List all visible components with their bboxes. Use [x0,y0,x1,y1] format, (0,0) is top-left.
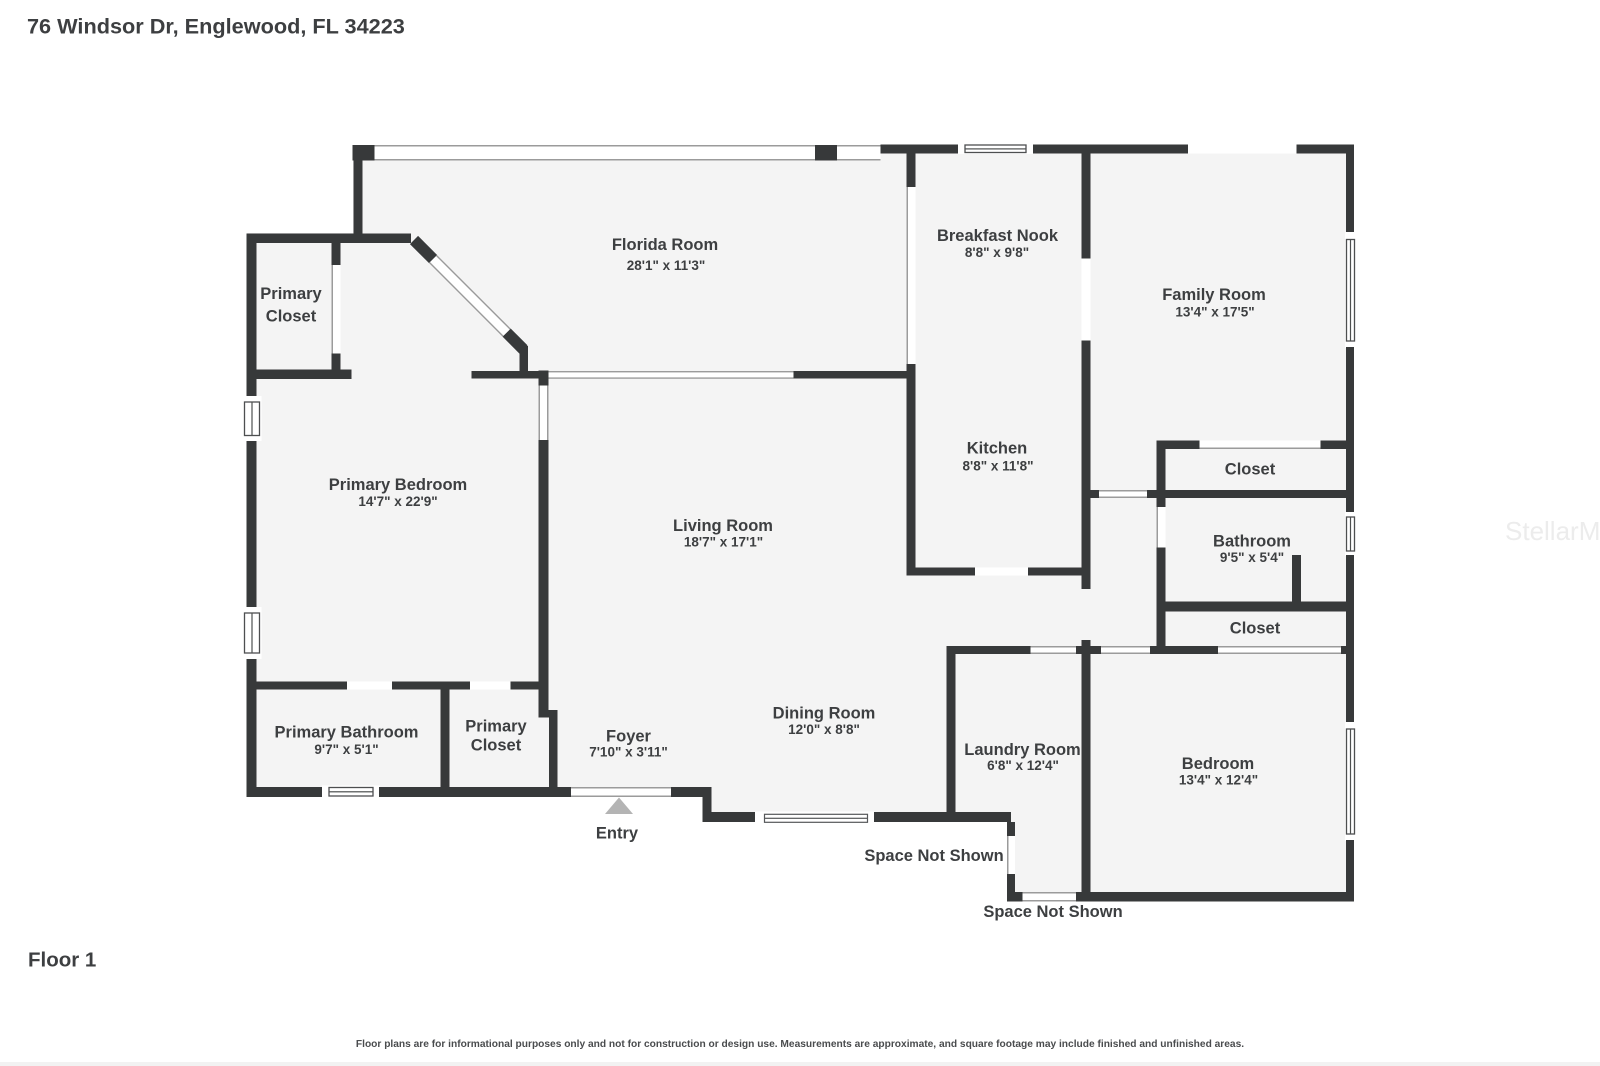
svg-text:8'8" x 11'8": 8'8" x 11'8" [962,459,1033,474]
svg-text:Foyer: Foyer [606,728,652,746]
svg-text:Laundry Room: Laundry Room [964,741,1080,759]
svg-text:StellarMLS: StellarMLS [1505,516,1600,546]
svg-text:Living Room: Living Room [673,517,773,535]
svg-text:13'4" x 12'4": 13'4" x 12'4" [1179,773,1258,788]
svg-text:Closet: Closet [1225,461,1276,479]
svg-text:8'8" x 9'8": 8'8" x 9'8" [965,245,1029,260]
svg-text:6'8" x 12'4": 6'8" x 12'4" [987,758,1059,773]
svg-text:Kitchen: Kitchen [967,440,1028,458]
svg-text:Breakfast Nook: Breakfast Nook [937,227,1059,245]
svg-text:Primary Bedroom: Primary Bedroom [329,476,467,494]
svg-text:Florida Room: Florida Room [612,236,718,254]
svg-text:28'1" x 11'3": 28'1" x 11'3" [627,258,706,273]
svg-text:76 Windsor Dr, Englewood, FL 3: 76 Windsor Dr, Englewood, FL 34223 [27,14,405,39]
svg-text:12'0" x 8'8": 12'0" x 8'8" [788,722,860,737]
svg-text:Primary Bathroom: Primary Bathroom [275,724,419,742]
svg-text:Floor plans are for informatio: Floor plans are for informational purpos… [356,1039,1244,1050]
svg-text:Closet: Closet [266,308,317,326]
svg-text:18'7" x 17'1": 18'7" x 17'1" [684,535,763,550]
svg-text:Dining Room: Dining Room [773,705,876,723]
svg-text:Family Room: Family Room [1162,286,1266,304]
svg-text:Floor 1: Floor 1 [28,949,96,972]
svg-text:9'7" x 5'1": 9'7" x 5'1" [314,742,378,757]
svg-text:7'10" x 3'11": 7'10" x 3'11" [589,745,668,760]
svg-text:Space Not Shown: Space Not Shown [983,903,1122,921]
svg-text:Closet: Closet [1230,620,1281,638]
svg-text:Space Not Shown: Space Not Shown [864,847,1003,865]
svg-text:14'7" x 22'9": 14'7" x 22'9" [358,494,437,509]
svg-text:9'5" x 5'4": 9'5" x 5'4" [1220,550,1284,565]
svg-text:Primary: Primary [260,285,322,303]
svg-text:Entry: Entry [596,825,639,843]
svg-text:Closet: Closet [471,737,522,755]
svg-text:Bedroom: Bedroom [1182,755,1254,773]
svg-text:Bathroom: Bathroom [1213,533,1291,551]
svg-text:13'4" x 17'5": 13'4" x 17'5" [1175,305,1254,320]
svg-text:Primary: Primary [465,718,527,736]
